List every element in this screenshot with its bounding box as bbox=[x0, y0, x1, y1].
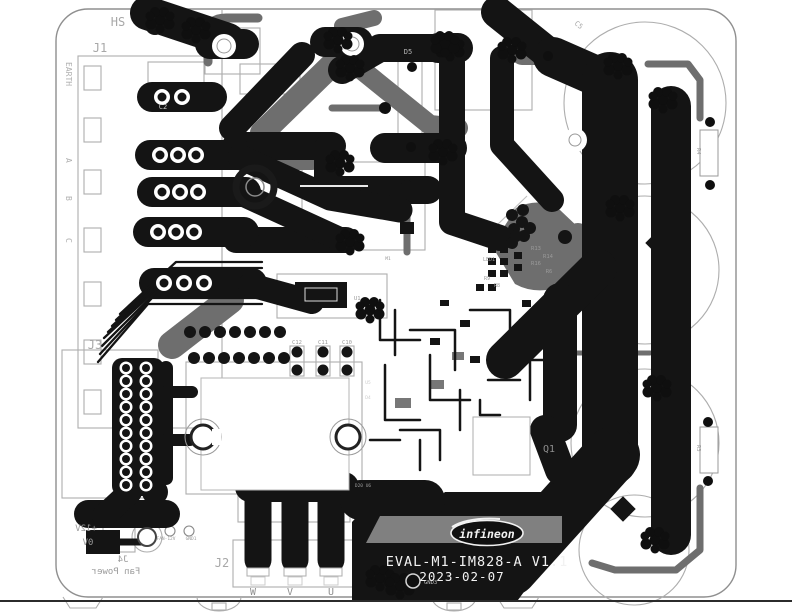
label-gnd1: GND1 bbox=[186, 536, 197, 542]
pcb-layout-view: HS J1 EARTH A B C C2 C5 D5 J3 J2 J4 Fan … bbox=[0, 0, 792, 612]
label-q1: Q1 bbox=[543, 444, 555, 455]
label-phase-u-mirrored: U bbox=[328, 587, 334, 598]
label-0v-mirrored: 0V bbox=[82, 538, 93, 548]
label-r6: R6 bbox=[546, 269, 553, 275]
label-earth: EARTH bbox=[64, 62, 73, 86]
label-plus12v-mirrored: +12V bbox=[75, 524, 97, 534]
label-phase-v-mirrored: V bbox=[287, 587, 293, 598]
label-c12: C12 bbox=[292, 340, 302, 346]
label-phase-b: B bbox=[64, 196, 73, 201]
label-d20-u6: D20 U6 bbox=[355, 483, 372, 489]
label-fan-power-mirrored: Fan Power bbox=[91, 567, 140, 577]
pcb-canvas: HS J1 EARTH A B C C2 C5 D5 J3 J2 J4 Fan … bbox=[0, 0, 792, 612]
label-j2: J2 bbox=[215, 556, 229, 570]
label-phase-w-mirrored: W bbox=[249, 587, 256, 598]
label-d5: D5 bbox=[404, 48, 412, 56]
label-j1: J1 bbox=[93, 41, 107, 55]
label-d4: D4 bbox=[365, 395, 371, 401]
label-r13: R13 bbox=[531, 246, 541, 252]
label-m1: M1 bbox=[385, 256, 391, 262]
label-u1: U1 bbox=[354, 296, 361, 302]
label-fan12v: FAN-12V bbox=[157, 536, 176, 542]
label-c2: C2 bbox=[159, 103, 167, 111]
board-date-text: 2023-02-07 bbox=[419, 569, 504, 584]
label-c10: C10 bbox=[342, 340, 352, 346]
label-phase-c: C bbox=[64, 238, 73, 243]
gnd3-test-pad bbox=[406, 574, 420, 588]
label-j4-mirrored: J4 bbox=[118, 555, 129, 565]
board-model-text: EVAL-M1-IM828-A V1.1 bbox=[386, 554, 569, 570]
label-r16: R16 bbox=[531, 261, 541, 267]
logo-text: infineon bbox=[459, 527, 514, 541]
label-r14: R14 bbox=[543, 254, 554, 260]
label-c5: C5 bbox=[573, 19, 585, 31]
label-u5: U5 bbox=[365, 380, 371, 386]
label-r9: R9 bbox=[484, 276, 490, 282]
label-j3: J3 bbox=[88, 338, 102, 352]
label-led1: LED1 bbox=[483, 257, 495, 263]
label-r4: R4 bbox=[695, 148, 701, 155]
label-r3: R3 bbox=[695, 445, 701, 452]
label-r8: R8 bbox=[494, 283, 500, 289]
label-hs: HS bbox=[111, 15, 125, 29]
label-c11: C11 bbox=[318, 340, 328, 346]
label-phase-a: A bbox=[64, 158, 73, 163]
